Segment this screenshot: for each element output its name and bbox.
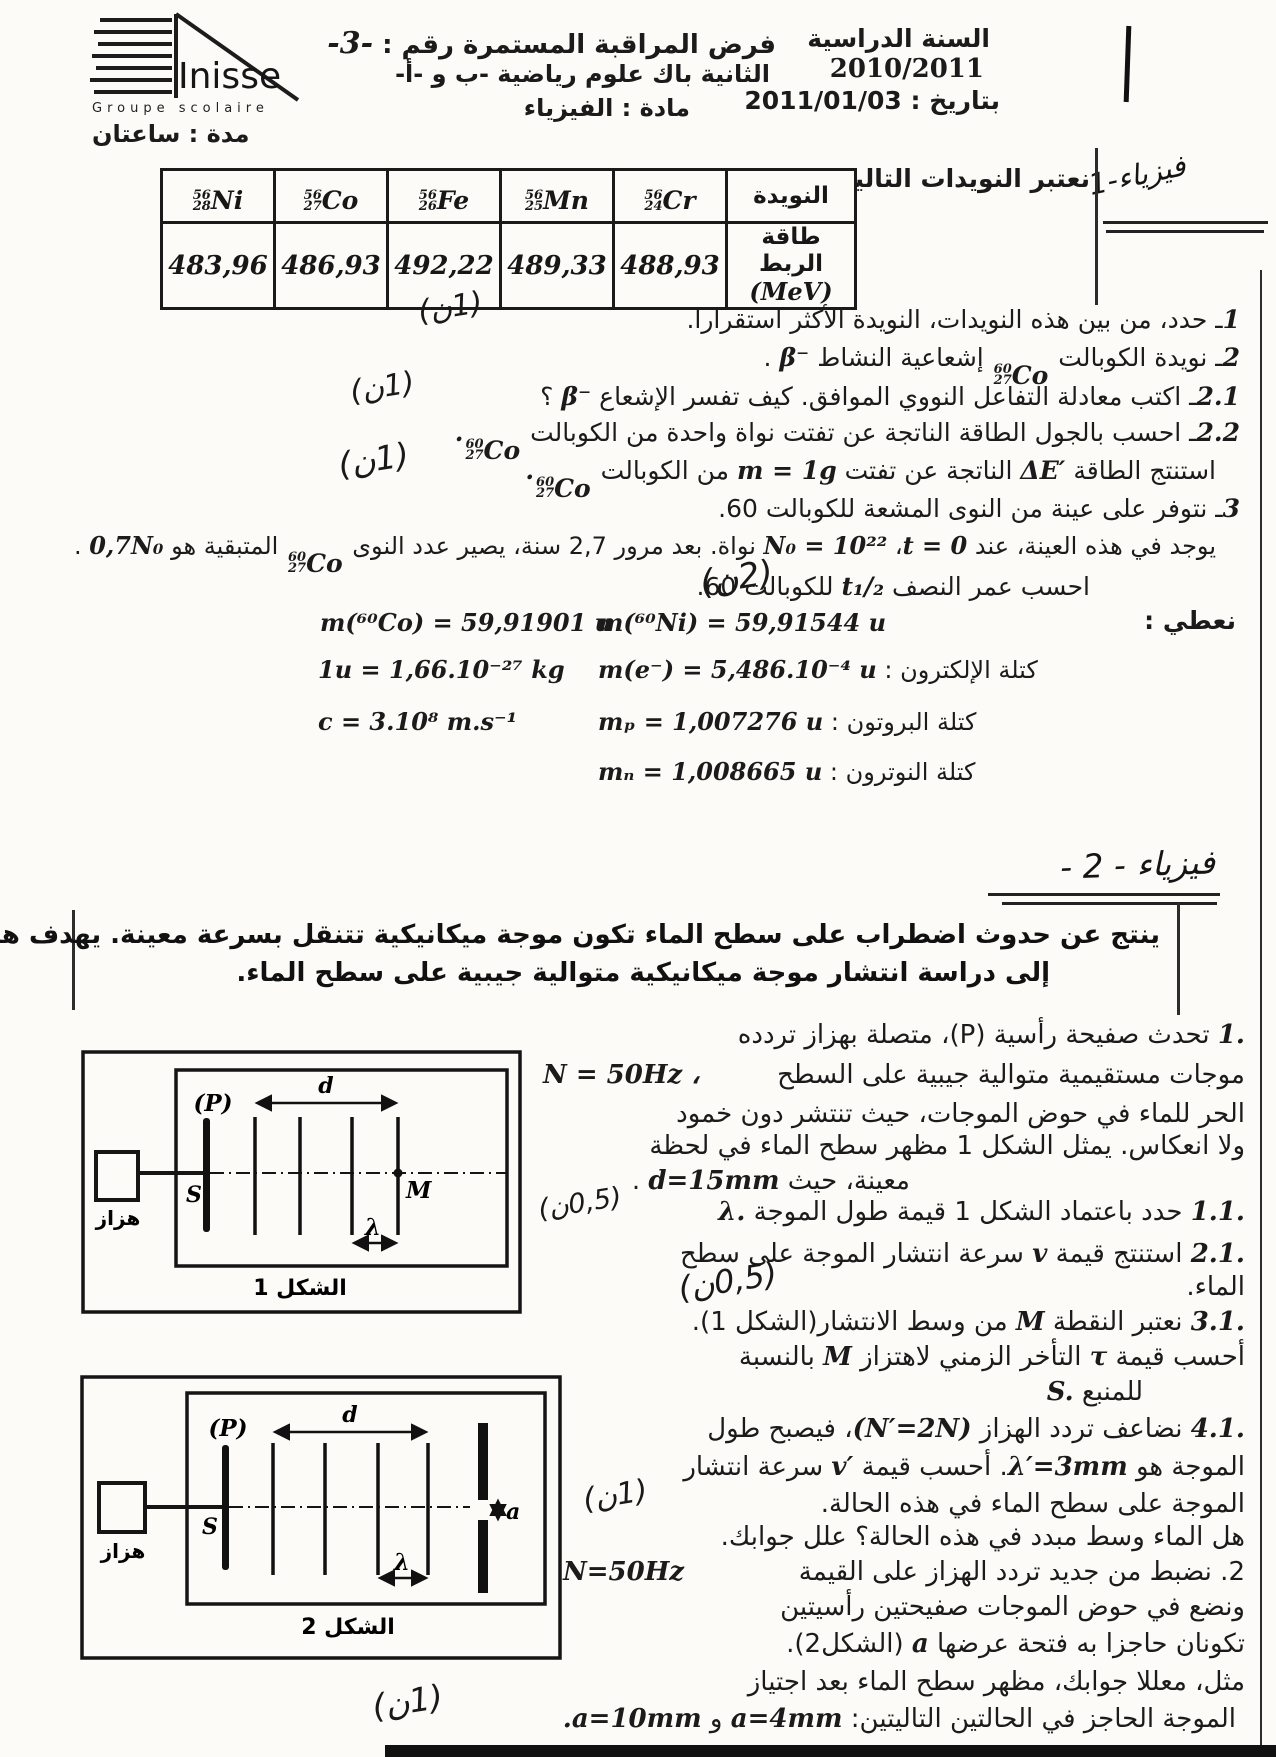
given-proton-mass: كتلة البروتون : mₚ = 1,007276 u [598, 707, 976, 736]
aperture-a-label: a [506, 1499, 520, 1525]
exam-number: -3- [327, 26, 373, 61]
exam-duration: مدة : ساعتان [92, 120, 250, 148]
intro-bar-right [1177, 903, 1180, 1015]
question-2-1: 2.1ـ اكتب معادلة التفاعل النووي الموافق.… [540, 382, 1240, 411]
question-3b: يوجد في هذه العينة، عند t = 0، N₀ = 10²²… [74, 531, 1216, 578]
wave-q1-line4: ولا انعكاس. يمثل الشكل 1 مظهر سطح الماء … [649, 1131, 1245, 1161]
handwritten-mark-q2w: (1ن) [369, 1677, 445, 1727]
wave-q4-1-line2: الموجة هو λ′=3mm. أحسب قيمة v′ سرعة انتش… [683, 1452, 1245, 1482]
physics2-heading-underline-2 [1002, 902, 1217, 905]
wave-q2-line5: الموجة الحاجز في الحالتين التاليتين: a=4… [563, 1704, 1236, 1734]
vibrator-label: هزاز [95, 1206, 141, 1230]
source-label: S [186, 1182, 202, 1208]
physics2-heading-underline-1 [988, 893, 1220, 896]
figure-2: هزاز (P) S d λ a الشكل 2 [78, 1372, 570, 1664]
wavelength-label: λ [364, 1214, 381, 1241]
figure1-caption: الشكل 1 [253, 1276, 347, 1301]
vibrator-box [96, 1152, 138, 1200]
school-year-label: السنة الدراسية [807, 24, 990, 53]
handwritten-mark-q11: (0,5ن) [536, 1182, 624, 1226]
isotope-co60: 6027Co [288, 549, 343, 578]
wave-q2-line4: مثل، معللا جوابك، مظهر سطح الماء بعد اجت… [748, 1667, 1245, 1697]
nuclide-header-row: 5628Ni 5627Co 5626Fe 5625Mn 5624Cr النوي… [162, 170, 856, 223]
nuclide-symbol-mn: 5625Mn [501, 170, 614, 223]
exam-subject: مادة : الفيزياء [524, 94, 690, 122]
margin-title-underline-2 [1106, 230, 1264, 233]
wavelength-label: λ [393, 1549, 410, 1576]
wave-q1-line3: الحر للماء في حوض الموجات، حيث تنتشر دون… [676, 1099, 1245, 1129]
intro-line-2: إلى دراسة انتشار موجة ميكانيكية متوالية … [236, 958, 1050, 988]
wave-q3-1-line3: للمنبع S. [1047, 1377, 1143, 1407]
binding-energy-co: 486,93 [275, 223, 388, 309]
logo-lines-icon [90, 20, 172, 92]
distance-d-label: d [342, 1402, 357, 1428]
exam-title-line: فرض المراقبة المستمرة رقم : -3- [327, 26, 776, 61]
binding-energy-ni: 483,96 [162, 223, 275, 309]
margin-separator-line [1095, 148, 1098, 305]
plate-p [222, 1445, 229, 1570]
wave-q2-1-line2: الماء. [1186, 1272, 1245, 1302]
bottom-edge-bar [385, 1745, 1276, 1757]
binding-energy-row: 483,96 486,93 492,22 489,33 488,93 طاقة … [162, 223, 856, 309]
given-label: نعطي : [1144, 606, 1236, 635]
wave-q1-line1: 1. تحدث صفيحة رأسية (P)، متصلة بهزاز ترد… [738, 1020, 1245, 1050]
figure2-caption: الشكل 2 [301, 1615, 395, 1640]
distance-d-label: d [318, 1073, 333, 1099]
nuclide-header-cell: النويدة [727, 170, 856, 223]
physics2-heading: فيزياء - 2 - [1059, 842, 1215, 886]
isotope-co60: 6027Co [465, 436, 520, 465]
point-m-dot [394, 1169, 403, 1178]
nuclide-symbol-fe: 5626Fe [388, 170, 501, 223]
intro-line-1: ينتج عن حدوث اضطراب على سطح الماء تكون م… [0, 920, 1160, 950]
plate-p [203, 1118, 210, 1232]
nuclide-symbol-ni: 5628Ni [162, 170, 275, 223]
wave-q4-1-line3: الموجة على سطح الماء في هذه الحالة. [821, 1489, 1245, 1519]
question-1: 1ـ حدد، من بين هذه النويدات، النويدة الأ… [686, 305, 1240, 334]
wave-q3-1-line2: أحسب قيمة τ التأخر الزمني لاهتزاز M بالن… [739, 1342, 1245, 1372]
given-atomic-unit: 1u = 1,66.10⁻²⁷ kg [318, 655, 565, 684]
school-logo: Inisse Groupe scolaire [80, 8, 310, 120]
binding-energy-label-cell: طاقة الربط (MeV) [727, 223, 856, 309]
vibrator-label: هزاز [100, 1539, 146, 1563]
wave-q1-line2: N = 50Hz ،موجات مستقيمية متوالية جيبية ع… [543, 1060, 1245, 1090]
page-right-edge-line [1260, 270, 1262, 1757]
isotope-co60: 6027Co [536, 474, 591, 503]
given-light-speed: c = 3.10⁸ m.s⁻¹ [318, 707, 517, 736]
wave-q2-line1: N=50Hz2. نضبط من جديد تردد الهزاز على ال… [563, 1557, 1245, 1587]
wave-q1-1: 1.1. حدد باعتماد الشكل 1 قيمة طول الموجة… [718, 1197, 1245, 1227]
given-electron-mass: كتلة الإلكترون : m(e⁻) = 5,486.10⁻⁴ u [598, 655, 1038, 684]
exam-level: الثانية باك علوم رياضية -ب و -أ- [395, 60, 770, 88]
point-m-label: M [405, 1177, 433, 1204]
margin-title-underline-1 [1103, 221, 1268, 224]
given-neutron-mass: كتلة النوترون : mₙ = 1,008665 u [598, 757, 975, 786]
exam-title: فرض المراقبة المستمرة رقم : [382, 30, 776, 60]
figure-1: هزاز (P) S M d λ الشكل 1 [78, 1045, 528, 1320]
binding-energy-mn: 489,33 [501, 223, 614, 309]
school-year-value: 2010/2011 [830, 54, 984, 84]
given-mass-ni: m(⁶⁰Ni) = 59,91544 u [598, 608, 886, 637]
wave-q4-1-line1: 4.1. نضاعف تردد الهزاز (N′=2N)، فيصبح طو… [707, 1414, 1245, 1444]
wave-q4-1-line4: هل الماء وسط مبدد في هذه الحالة؟ علل جوا… [721, 1522, 1245, 1552]
plate-label: (P) [208, 1415, 247, 1442]
handwritten-mark-q21: (1ن) [348, 365, 417, 410]
nuclide-intro: نعتبر النويدات التالية : [821, 164, 1090, 193]
barrier-top-bar [478, 1423, 488, 1500]
given-mass-co: m(⁶⁰Co) = 59,91901 u [320, 608, 612, 637]
question-3: 3ـ نتوفر على عينة من النوى المشعة للكوبا… [718, 494, 1240, 523]
wave-q3-1-line1: 3.1. نعتبر النقطة M من وسط الانتشار(الشك… [692, 1307, 1245, 1337]
handwritten-mark-q41: (1ن) [581, 1473, 650, 1518]
vibrator-box [99, 1483, 145, 1532]
exam-scan-page: Inisse Groupe scolaire مدة : ساعتان فرض … [0, 0, 1276, 1757]
source-label: S [202, 1514, 218, 1540]
barrier-bottom-bar [478, 1520, 488, 1593]
plate-label: (P) [193, 1090, 232, 1117]
school-name: Inisse [178, 56, 281, 97]
binding-energy-cr: 488,93 [614, 223, 727, 309]
wave-q2-line2: ونضع في حوض الموجات صفيحتين رأسيتين [780, 1592, 1245, 1622]
handwritten-mark-q22b: (1ن) [335, 435, 411, 485]
nuclide-symbol-co: 5627Co [275, 170, 388, 223]
physics1-margin-title: فيزياء-1 [1085, 148, 1188, 202]
page-corner-mark [1124, 26, 1132, 102]
exam-date: بتاريخ : 2011/01/03 [744, 86, 1000, 115]
wave-q2-line3: تكونان حاجزا به فتحة عرضها a (الشكل2). [786, 1629, 1245, 1659]
nuclide-symbol-cr: 5624Cr [614, 170, 727, 223]
nuclide-table: 5628Ni 5627Co 5626Fe 5625Mn 5624Cr النوي… [160, 168, 857, 310]
school-subtitle: Groupe scolaire [92, 101, 269, 116]
wave-q1-line5: معينة، حيث d=15mm . [632, 1166, 910, 1196]
